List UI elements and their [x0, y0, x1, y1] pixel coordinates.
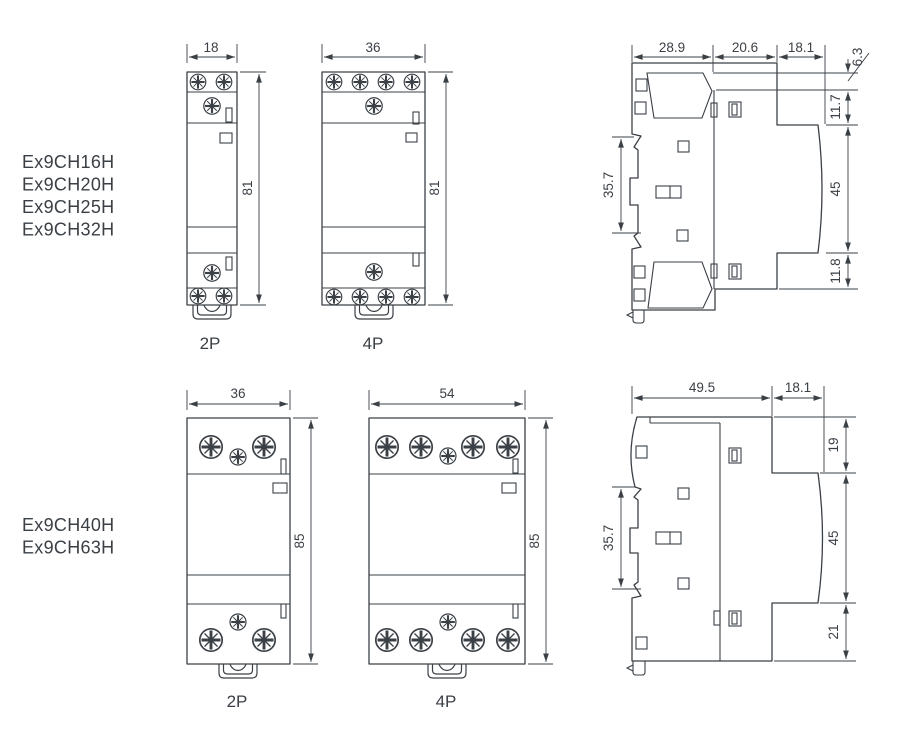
latch-slot [413, 112, 419, 124]
indicator-window [406, 133, 417, 142]
dimension-drawing-page: Ex9CH16H Ex9CH20H Ex9CH25H Ex9CH32H 18 [0, 0, 903, 732]
indicator-window [220, 133, 232, 143]
dim-text: 35.7 [601, 525, 616, 551]
latch-slot [281, 604, 286, 618]
dim-text: 18.1 [785, 380, 811, 395]
screw-icons [326, 74, 420, 305]
dim-text: 19 [826, 437, 841, 452]
dim-text: 11.8 [828, 258, 843, 283]
indicator-window [502, 483, 516, 493]
front-view-bottom-2p [187, 418, 290, 678]
model-label: Ex9CH25H [22, 197, 114, 217]
indicator-window [273, 483, 287, 493]
dim-text: 81 [240, 180, 255, 195]
dim-width-bottom-4p: 54 [369, 386, 525, 410]
dim-width-top-2p: 18 [187, 40, 237, 63]
dims-side-top: 28.9 20.6 18.1 6.3 11.7 45 11.8 35.7 [601, 40, 869, 289]
din-clip-hook-tip [627, 312, 633, 318]
model-label: Ex9CH32H [22, 220, 114, 240]
screw-icons [376, 436, 519, 651]
dim-height-top-4p: 81 [427, 72, 453, 305]
front-view-bottom-4p [369, 418, 525, 678]
din-clip-icon [428, 664, 466, 678]
din-clip-hook [633, 310, 644, 323]
latch-slot [281, 459, 286, 474]
model-label: Ex9CH16H [22, 152, 114, 172]
caption-bottom-2p: 2P [227, 692, 248, 711]
dim-text: 85 [527, 533, 542, 548]
dim-text: 36 [230, 386, 245, 401]
din-clip-icon [355, 305, 393, 319]
dim-text: 28.9 [659, 40, 685, 55]
model-label: Ex9CH40H [22, 515, 114, 535]
side-view-bottom [627, 417, 823, 675]
din-clip-hook-tip [627, 665, 633, 671]
dim-text: 11.7 [828, 94, 843, 119]
dim-text: 35.7 [601, 172, 616, 198]
din-clip-icon [193, 305, 231, 319]
dim-text: 45 [826, 530, 841, 545]
model-list-bottom: Ex9CH40H Ex9CH63H [22, 515, 114, 558]
latch-slot [226, 257, 232, 270]
dim-text: 18.1 [788, 40, 814, 55]
front-view-top-4p [322, 72, 425, 319]
dim-width-top-4p: 36 [322, 40, 425, 63]
latch-slot [226, 108, 232, 122]
front-view-top-2p [187, 72, 237, 319]
dim-text: 45 [828, 181, 843, 196]
model-list-top: Ex9CH16H Ex9CH20H Ex9CH25H Ex9CH32H [22, 152, 114, 240]
dim-height-top-2p: 81 [240, 72, 266, 305]
terminal-cover-bottom [648, 262, 712, 308]
dim-text: 21 [826, 624, 841, 639]
side-view-top [627, 63, 858, 323]
dim-text: 20.6 [732, 40, 758, 55]
caption-top-2p: 2P [200, 334, 221, 353]
caption-top-4p: 4P [363, 334, 384, 353]
dim-text: 49.5 [689, 380, 715, 395]
model-label: Ex9CH20H [22, 175, 114, 195]
din-clip-icon [219, 664, 257, 678]
latch-slot [513, 459, 518, 473]
caption-bottom-4p: 4P [436, 692, 457, 711]
drawing-canvas: Ex9CH16H Ex9CH20H Ex9CH25H Ex9CH32H 18 [0, 0, 903, 732]
dim-text: 18 [203, 40, 218, 55]
dim-text: 85 [292, 533, 307, 548]
dim-height-bottom-4p: 85 [527, 418, 553, 664]
dim-text: 81 [427, 180, 442, 195]
din-clip-hook [633, 661, 645, 675]
dim-height-bottom-2p: 85 [292, 418, 318, 664]
model-label: Ex9CH63H [22, 538, 114, 558]
dim-text: 6.3 [850, 48, 865, 67]
screw-icons [200, 436, 275, 651]
dim-text: 54 [439, 386, 455, 401]
terminal-cover-top [647, 73, 712, 118]
dim-text: 36 [365, 40, 380, 55]
latch-slot [413, 253, 419, 266]
latch-slot [513, 604, 518, 618]
dim-width-bottom-2p: 36 [187, 386, 290, 410]
